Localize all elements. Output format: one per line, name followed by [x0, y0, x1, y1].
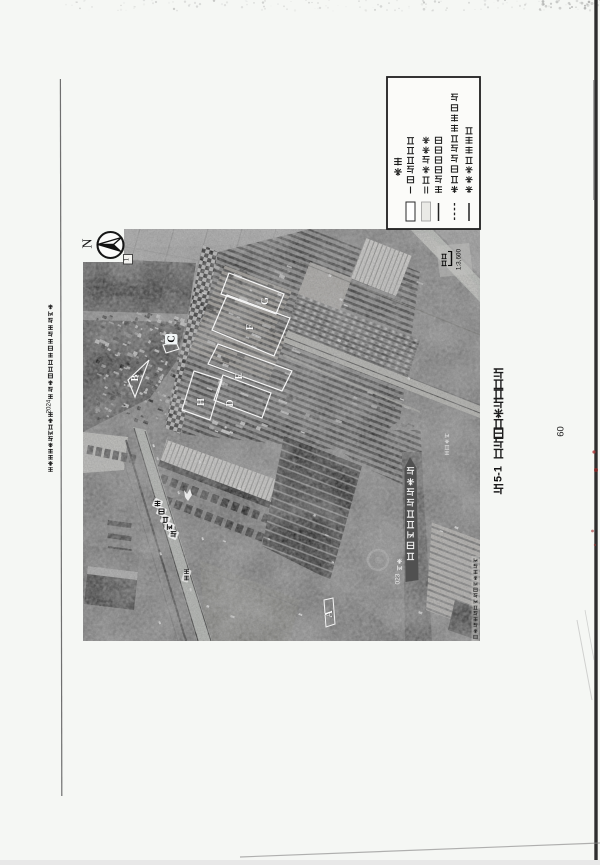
svg-text:023: 023	[395, 573, 402, 584]
svg-text:N: N	[81, 238, 96, 248]
svg-text:1: 1	[121, 257, 130, 261]
svg-text:A: A	[324, 610, 335, 618]
svg-text:1:3,600: 1:3,600	[456, 248, 463, 270]
svg-text:G: G	[260, 297, 271, 305]
svg-text:D: D	[225, 399, 236, 406]
svg-text:B: B	[130, 374, 141, 381]
svg-text:60: 60	[556, 426, 567, 437]
svg-text:E: E	[234, 372, 245, 379]
svg-text:C: C	[167, 335, 178, 342]
svg-text:F: F	[245, 324, 256, 330]
svg-text:H: H	[196, 398, 207, 406]
svg-text:2024: 2024	[46, 399, 53, 413]
svg-text:5-1: 5-1	[493, 466, 505, 482]
